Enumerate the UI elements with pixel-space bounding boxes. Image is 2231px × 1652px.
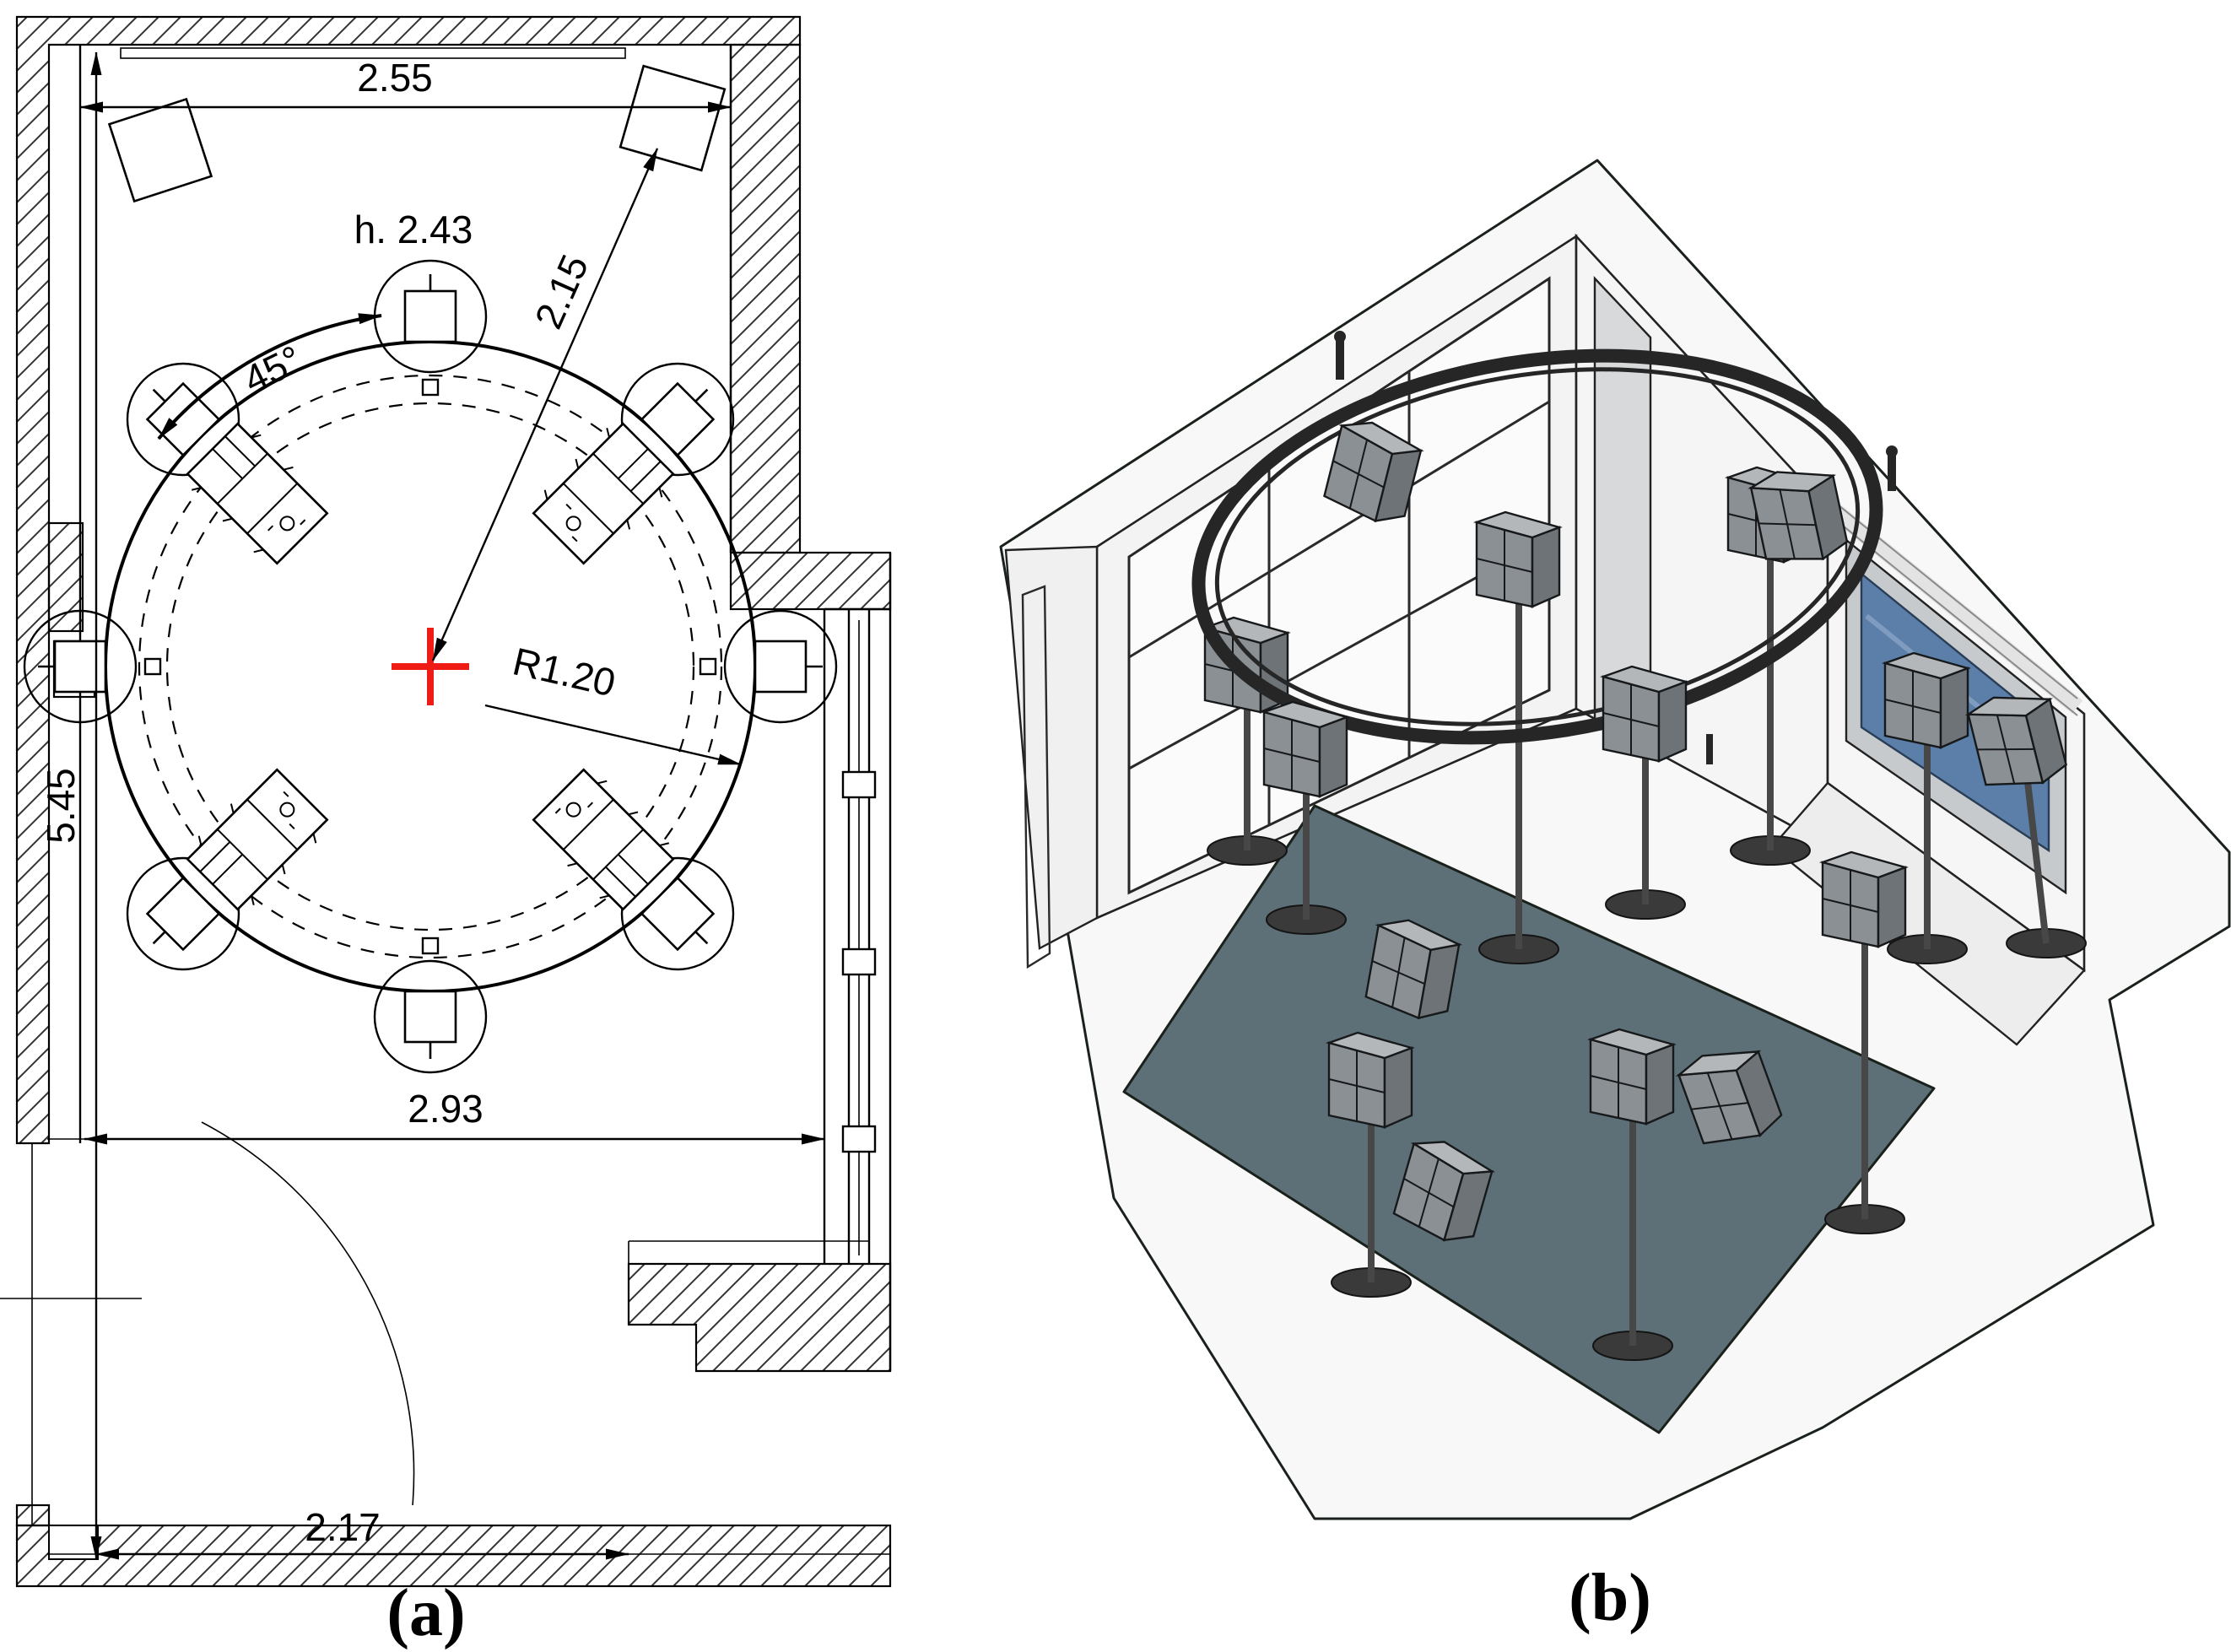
dim-top-width: 2.55 bbox=[357, 56, 433, 100]
dim-room-depth: 5.45 bbox=[39, 768, 83, 844]
measured-speaker-sw bbox=[181, 764, 333, 915]
door-swing-arc bbox=[202, 1122, 414, 1505]
dim-bottom-width: 2.17 bbox=[305, 1505, 381, 1549]
panel-b-label: (b) bbox=[1569, 1561, 1651, 1635]
wall-bottom-left-stub bbox=[17, 1505, 49, 1525]
dim-ceiling-height: h. 2.43 bbox=[354, 208, 473, 251]
measured-speaker-nw bbox=[181, 418, 333, 570]
dim-corner-distance: 2.15 bbox=[526, 248, 597, 335]
window-mullion bbox=[843, 949, 875, 974]
panel-a-label: (a) bbox=[386, 1576, 465, 1650]
window-mullion bbox=[843, 772, 875, 797]
render-3d-panel: (b) bbox=[1001, 160, 2229, 1635]
wall-partition-bottom-right bbox=[629, 1264, 890, 1371]
left-wall-pilaster bbox=[49, 523, 83, 631]
ring-marker-s bbox=[423, 938, 438, 953]
figure-canvas: 2.55 h. 2.43 45° 2.15 R1.20 5.45 2.93 2.… bbox=[0, 0, 2231, 1652]
plan-speaker-e bbox=[725, 611, 836, 722]
center-cross bbox=[392, 628, 469, 705]
dim-line-radius bbox=[485, 705, 741, 764]
window-mullion bbox=[843, 1126, 875, 1152]
ring-marker-e bbox=[700, 659, 716, 674]
dim-mid-width: 2.93 bbox=[408, 1087, 483, 1131]
dim-array-radius: R1.20 bbox=[509, 639, 619, 705]
left-wall bbox=[1006, 547, 1097, 948]
floor-plan-panel: 2.55 h. 2.43 45° 2.15 R1.20 5.45 2.93 2.… bbox=[0, 17, 890, 1650]
corner-speaker-top-left bbox=[110, 100, 212, 202]
ring-marker-w bbox=[145, 659, 160, 674]
measured-speaker-se bbox=[527, 764, 679, 915]
dim-speaker-angle: 45° bbox=[236, 337, 308, 402]
wall-right-upper bbox=[731, 45, 800, 553]
figure-page: 2.55 h. 2.43 45° 2.15 R1.20 5.45 2.93 2.… bbox=[0, 0, 2231, 1652]
plan-speaker-n bbox=[375, 261, 486, 372]
measured-speaker-ne bbox=[527, 418, 679, 570]
wall-right-step bbox=[731, 553, 890, 609]
plan-speaker-s bbox=[375, 961, 486, 1072]
ring-marker-n bbox=[423, 380, 438, 395]
corner-speaker-top-right bbox=[620, 66, 725, 170]
